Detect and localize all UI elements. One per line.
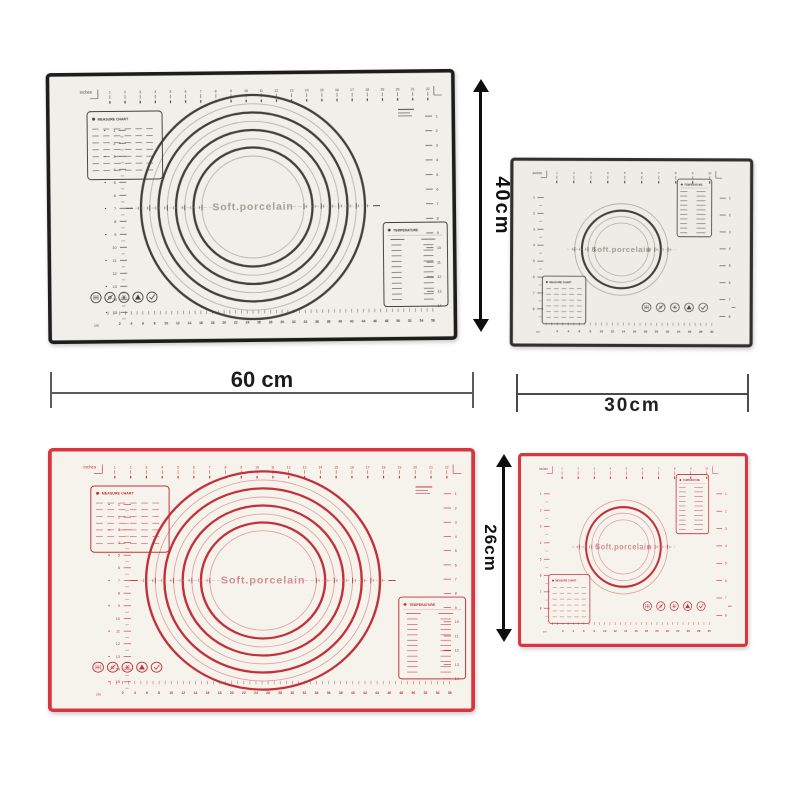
svg-text:12: 12 xyxy=(611,330,615,334)
svg-text:10: 10 xyxy=(255,465,259,469)
svg-text:46: 46 xyxy=(373,319,377,323)
svg-text:4: 4 xyxy=(154,90,156,94)
svg-text:4: 4 xyxy=(533,243,535,247)
svg-text:18: 18 xyxy=(644,330,648,334)
svg-text:16: 16 xyxy=(335,88,339,92)
svg-text:8: 8 xyxy=(437,217,439,221)
svg-text:20: 20 xyxy=(230,691,234,695)
svg-text:26: 26 xyxy=(257,320,261,324)
svg-text:5: 5 xyxy=(533,259,535,263)
svg-text:1: 1 xyxy=(455,492,457,496)
svg-text:1: 1 xyxy=(436,114,438,118)
measure-end-tick xyxy=(747,374,749,412)
svg-text:3: 3 xyxy=(436,144,438,148)
svg-text:10: 10 xyxy=(600,329,604,333)
svg-text:50: 50 xyxy=(396,319,400,323)
dimension-line-60cm: 60 cm xyxy=(50,372,474,412)
svg-text:4: 4 xyxy=(134,691,136,695)
svg-text:20: 20 xyxy=(222,321,226,325)
svg-text:12: 12 xyxy=(116,642,120,646)
svg-text:34: 34 xyxy=(304,320,308,324)
svg-text:12: 12 xyxy=(181,691,185,695)
svg-text:7: 7 xyxy=(455,578,457,582)
svg-text:13: 13 xyxy=(437,290,441,294)
arrowhead-down-icon xyxy=(496,629,512,642)
svg-text:5: 5 xyxy=(114,181,116,185)
svg-text:11: 11 xyxy=(437,260,441,264)
dimension-line-30cm: 30cm xyxy=(516,374,749,420)
svg-text:22: 22 xyxy=(426,87,430,91)
baking-mat-large-black: inches1234567891011121314151617181920212… xyxy=(46,69,458,344)
svg-text:16: 16 xyxy=(635,629,638,633)
svg-text:19: 19 xyxy=(380,87,384,91)
svg-text:13: 13 xyxy=(303,465,307,469)
svg-text:20: 20 xyxy=(655,629,658,633)
svg-text:18: 18 xyxy=(218,691,222,695)
svg-text:6: 6 xyxy=(436,187,438,191)
svg-text:14: 14 xyxy=(622,330,626,334)
svg-text:11: 11 xyxy=(271,465,275,469)
svg-text:36: 36 xyxy=(315,320,319,324)
svg-text:14: 14 xyxy=(318,465,322,469)
svg-text:42: 42 xyxy=(363,691,367,695)
svg-text:21: 21 xyxy=(411,87,415,91)
svg-text:17: 17 xyxy=(366,465,370,469)
svg-text:Soft.porcelain: Soft.porcelain xyxy=(595,542,652,551)
svg-text:cm: cm xyxy=(536,330,541,334)
svg-text:7: 7 xyxy=(118,579,120,583)
svg-text:4: 4 xyxy=(725,544,727,548)
svg-text:8: 8 xyxy=(158,691,160,695)
svg-text:5: 5 xyxy=(725,561,727,565)
svg-text:16: 16 xyxy=(350,465,354,469)
svg-text:14: 14 xyxy=(193,691,197,695)
svg-text:7: 7 xyxy=(200,89,202,93)
svg-text:3: 3 xyxy=(725,527,727,531)
svg-text:inches: inches xyxy=(533,171,543,175)
svg-text:42: 42 xyxy=(350,319,354,323)
svg-text:9: 9 xyxy=(455,606,457,610)
svg-text:8: 8 xyxy=(540,606,542,610)
svg-text:TEMPERATURE: TEMPERATURE xyxy=(684,184,703,187)
svg-text:3: 3 xyxy=(540,525,542,529)
svg-text:MEASURE CHART: MEASURE CHART xyxy=(555,580,576,583)
svg-text:1: 1 xyxy=(729,196,731,200)
svg-text:15: 15 xyxy=(113,311,117,315)
svg-text:16: 16 xyxy=(206,691,210,695)
svg-text:8: 8 xyxy=(224,465,226,469)
svg-text:30: 30 xyxy=(710,330,714,334)
svg-text:52: 52 xyxy=(424,691,428,695)
svg-text:38: 38 xyxy=(339,691,343,695)
svg-text:44: 44 xyxy=(362,319,366,323)
svg-text:5: 5 xyxy=(540,557,542,561)
arrowhead-up-icon xyxy=(473,79,489,92)
product-image-pastry-mats: inches1234567891011121314151617181920212… xyxy=(0,0,800,800)
svg-text:15: 15 xyxy=(334,465,338,469)
svg-text:2: 2 xyxy=(455,506,457,510)
svg-text:14: 14 xyxy=(305,88,309,92)
svg-text:6: 6 xyxy=(185,89,187,93)
svg-text:inches: inches xyxy=(539,467,548,471)
svg-text:6: 6 xyxy=(455,563,457,567)
svg-text:2: 2 xyxy=(533,212,535,216)
svg-text:22: 22 xyxy=(666,330,670,334)
svg-text:10: 10 xyxy=(455,620,459,624)
svg-text:8: 8 xyxy=(728,315,730,319)
svg-text:50: 50 xyxy=(411,691,415,695)
svg-text:5: 5 xyxy=(177,465,179,469)
svg-text:40: 40 xyxy=(351,691,355,695)
svg-text:7: 7 xyxy=(540,590,542,594)
svg-text:10: 10 xyxy=(705,466,708,470)
svg-text:8: 8 xyxy=(114,220,116,224)
svg-text:2: 2 xyxy=(122,691,124,695)
svg-text:12: 12 xyxy=(437,275,441,279)
svg-text:4: 4 xyxy=(436,158,438,162)
svg-text:10: 10 xyxy=(603,629,606,633)
svg-text:10: 10 xyxy=(164,321,168,325)
baking-mat-small-red: inches12345678910cm246810121416182022242… xyxy=(518,453,748,647)
svg-text:40: 40 xyxy=(338,319,342,323)
svg-text:8: 8 xyxy=(215,89,217,93)
svg-text:5: 5 xyxy=(169,90,171,94)
svg-text:3: 3 xyxy=(118,528,120,532)
svg-text:56: 56 xyxy=(431,318,435,322)
svg-text:10: 10 xyxy=(116,617,120,621)
svg-text:6: 6 xyxy=(193,465,195,469)
svg-text:4: 4 xyxy=(114,168,116,172)
svg-text:28: 28 xyxy=(697,629,700,633)
measure-end-tick xyxy=(50,372,52,408)
svg-text:18: 18 xyxy=(382,465,386,469)
svg-text:8: 8 xyxy=(154,321,156,325)
svg-text:10: 10 xyxy=(112,246,116,250)
svg-text:2: 2 xyxy=(130,465,132,469)
svg-text:22: 22 xyxy=(445,465,449,469)
svg-text:34: 34 xyxy=(315,691,319,695)
svg-text:12: 12 xyxy=(455,649,459,653)
svg-text:4: 4 xyxy=(161,465,163,469)
svg-text:7: 7 xyxy=(436,202,438,206)
svg-text:12: 12 xyxy=(113,272,117,276)
svg-text:8: 8 xyxy=(533,307,535,311)
svg-text:26: 26 xyxy=(266,691,270,695)
svg-text:13: 13 xyxy=(290,88,294,92)
svg-text:18: 18 xyxy=(645,629,648,633)
svg-text:8: 8 xyxy=(455,592,457,596)
svg-text:24: 24 xyxy=(246,320,250,324)
svg-text:48: 48 xyxy=(399,691,403,695)
svg-text:16: 16 xyxy=(199,321,203,325)
svg-text:6: 6 xyxy=(142,322,144,326)
svg-text:20: 20 xyxy=(396,87,400,91)
svg-text:2: 2 xyxy=(725,509,727,513)
svg-text:5: 5 xyxy=(455,549,457,553)
svg-text:MEASURE CHART: MEASURE CHART xyxy=(102,492,135,496)
svg-text:TEMPERATURE: TEMPERATURE xyxy=(683,479,701,482)
svg-text:21: 21 xyxy=(429,465,433,469)
svg-text:5: 5 xyxy=(436,173,438,177)
svg-text:12: 12 xyxy=(287,465,291,469)
dimension-label-60cm: 60 cm xyxy=(231,367,293,393)
svg-text:7: 7 xyxy=(209,465,211,469)
svg-text:48: 48 xyxy=(385,319,389,323)
dimension-label-30cm: 30cm xyxy=(604,395,661,417)
svg-text:12: 12 xyxy=(176,321,180,325)
svg-text:TEMPERATURE: TEMPERATURE xyxy=(393,228,419,232)
svg-text:14: 14 xyxy=(624,629,627,633)
svg-text:32: 32 xyxy=(292,320,296,324)
svg-text:30: 30 xyxy=(290,691,294,695)
svg-text:MEASURE CHART: MEASURE CHART xyxy=(98,117,130,121)
svg-text:4: 4 xyxy=(540,541,542,545)
svg-text:15: 15 xyxy=(116,680,120,684)
dimension-label-26cm: 26cm xyxy=(480,524,500,571)
svg-text:9: 9 xyxy=(240,465,242,469)
svg-text:8: 8 xyxy=(118,592,120,596)
arrowhead-up-icon xyxy=(496,454,512,467)
svg-text:18: 18 xyxy=(365,88,369,92)
measure-end-tick xyxy=(472,372,474,408)
measure-end-tick xyxy=(516,374,518,412)
svg-text:16: 16 xyxy=(633,330,637,334)
svg-text:32: 32 xyxy=(302,691,306,695)
svg-text:38: 38 xyxy=(327,320,331,324)
svg-text:6: 6 xyxy=(540,574,542,578)
svg-text:26: 26 xyxy=(687,629,690,633)
svg-text:11: 11 xyxy=(455,634,459,638)
svg-text:6: 6 xyxy=(725,579,727,583)
svg-text:12: 12 xyxy=(614,629,617,633)
svg-text:2: 2 xyxy=(436,129,438,133)
svg-text:10: 10 xyxy=(169,691,173,695)
svg-text:10: 10 xyxy=(244,89,248,93)
svg-text:1: 1 xyxy=(113,129,115,133)
svg-text:4: 4 xyxy=(130,322,132,326)
svg-text:7: 7 xyxy=(725,596,727,600)
svg-text:inches: inches xyxy=(83,465,96,470)
svg-text:1: 1 xyxy=(109,90,111,94)
svg-text:6: 6 xyxy=(729,281,731,285)
svg-text:24: 24 xyxy=(676,629,679,633)
svg-text:22: 22 xyxy=(234,321,238,325)
svg-text:52: 52 xyxy=(408,319,412,323)
svg-text:5: 5 xyxy=(729,264,731,268)
svg-text:1: 1 xyxy=(540,492,542,496)
svg-text:26: 26 xyxy=(688,330,692,334)
svg-text:36: 36 xyxy=(327,691,331,695)
svg-text:1: 1 xyxy=(114,465,116,469)
arrowhead-down-icon xyxy=(473,319,489,332)
svg-text:3: 3 xyxy=(729,230,731,234)
svg-text:2: 2 xyxy=(119,322,121,326)
svg-text:7: 7 xyxy=(114,207,116,211)
svg-text:3: 3 xyxy=(455,521,457,525)
svg-text:6: 6 xyxy=(533,275,535,279)
svg-text:cm: cm xyxy=(96,693,101,697)
svg-text:cm: cm xyxy=(94,324,99,328)
svg-text:28: 28 xyxy=(278,691,282,695)
svg-text:9: 9 xyxy=(437,231,439,235)
svg-text:28: 28 xyxy=(699,330,703,334)
svg-text:4: 4 xyxy=(455,535,457,539)
svg-text:17: 17 xyxy=(350,88,354,92)
svg-text:Soft.porcelain: Soft.porcelain xyxy=(592,245,652,254)
svg-text:4: 4 xyxy=(729,247,731,251)
svg-text:18: 18 xyxy=(211,321,215,325)
svg-text:24: 24 xyxy=(677,330,681,334)
svg-text:46: 46 xyxy=(387,691,391,695)
arrow-line xyxy=(479,89,482,322)
svg-text:2: 2 xyxy=(729,213,731,217)
svg-text:inches: inches xyxy=(80,90,92,95)
baking-mat-small-black: inches12345678910cm246810121416182022242… xyxy=(510,158,754,348)
svg-text:13: 13 xyxy=(455,663,459,667)
svg-text:MEASURE CHART: MEASURE CHART xyxy=(549,281,572,284)
svg-text:11: 11 xyxy=(113,259,117,263)
svg-text:2: 2 xyxy=(540,508,542,512)
svg-text:20: 20 xyxy=(413,465,417,469)
svg-text:3: 3 xyxy=(139,90,141,94)
svg-text:1: 1 xyxy=(533,196,535,200)
dimension-arrow-26cm: 26cm xyxy=(482,454,526,642)
svg-text:54: 54 xyxy=(436,691,440,695)
svg-text:56: 56 xyxy=(448,691,452,695)
svg-text:12: 12 xyxy=(274,89,278,93)
svg-text:14: 14 xyxy=(188,321,192,325)
svg-text:4: 4 xyxy=(118,541,120,545)
svg-text:TEMPERATURE: TEMPERATURE xyxy=(409,603,436,607)
svg-text:Soft.porcelain: Soft.porcelain xyxy=(212,201,293,214)
svg-text:8: 8 xyxy=(725,613,727,617)
svg-text:cm: cm xyxy=(543,630,547,634)
svg-text:13: 13 xyxy=(113,285,117,289)
svg-text:9: 9 xyxy=(114,233,116,237)
svg-text:20: 20 xyxy=(655,330,659,334)
svg-text:6: 6 xyxy=(118,566,120,570)
svg-text:30: 30 xyxy=(708,629,711,633)
svg-text:1: 1 xyxy=(118,503,120,507)
dimension-label-40cm: 40cm xyxy=(490,176,513,235)
svg-text:11: 11 xyxy=(259,89,263,93)
svg-text:10: 10 xyxy=(437,246,441,250)
svg-text:11: 11 xyxy=(116,630,120,634)
svg-text:3: 3 xyxy=(145,465,147,469)
svg-text:22: 22 xyxy=(666,629,669,633)
svg-text:19: 19 xyxy=(397,465,401,469)
svg-text:3: 3 xyxy=(533,227,535,231)
svg-text:10: 10 xyxy=(708,171,712,175)
svg-text:13: 13 xyxy=(116,655,120,659)
svg-text:7: 7 xyxy=(533,291,535,295)
svg-text:54: 54 xyxy=(420,319,424,323)
svg-text:44: 44 xyxy=(375,691,379,695)
svg-text:9: 9 xyxy=(230,89,232,93)
svg-text:5: 5 xyxy=(118,554,120,558)
dimension-arrow-40cm: 40cm xyxy=(473,79,519,332)
svg-text:22: 22 xyxy=(242,691,246,695)
svg-text:9: 9 xyxy=(118,604,120,608)
svg-text:15: 15 xyxy=(320,88,324,92)
svg-text:7: 7 xyxy=(729,298,731,302)
svg-text:6: 6 xyxy=(114,194,116,198)
svg-text:24: 24 xyxy=(254,691,258,695)
svg-text:2: 2 xyxy=(124,90,126,94)
svg-text:Soft.porcelain: Soft.porcelain xyxy=(221,575,306,587)
baking-mat-large-red: inches1234567891011121314151617181920212… xyxy=(48,448,475,712)
svg-text:1: 1 xyxy=(725,492,727,496)
arrow-line xyxy=(502,463,505,633)
svg-text:30: 30 xyxy=(280,320,284,324)
svg-text:6: 6 xyxy=(146,691,148,695)
svg-text:28: 28 xyxy=(269,320,273,324)
